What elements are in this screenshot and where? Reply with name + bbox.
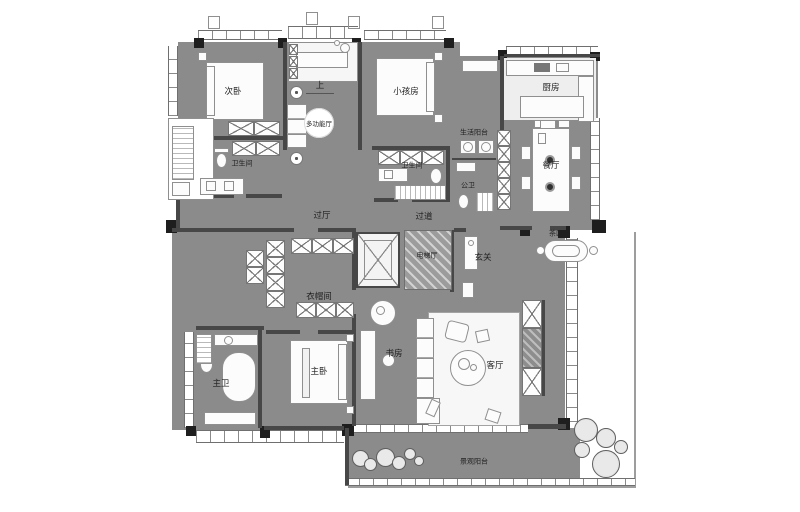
parapet-stub xyxy=(208,16,220,29)
plant xyxy=(592,450,620,478)
shower xyxy=(476,192,494,212)
wardrobe-box xyxy=(312,238,333,254)
window-seat xyxy=(204,412,256,425)
cabinet-decor xyxy=(468,240,474,246)
tv-wall-cabinet xyxy=(522,300,542,328)
wardrobe-box xyxy=(266,240,285,257)
radiator xyxy=(172,126,194,180)
toilet xyxy=(216,153,227,168)
wardrobe-box xyxy=(333,238,354,254)
parapet-stub xyxy=(432,16,444,29)
ceiling-fixture xyxy=(290,86,303,99)
ceiling-fixture xyxy=(290,152,303,165)
wall-segment xyxy=(452,158,496,160)
furniture-wardrobe xyxy=(228,121,254,136)
furniture-wardrobe xyxy=(254,121,280,136)
plant xyxy=(574,418,598,442)
column xyxy=(194,38,204,48)
sink xyxy=(224,336,233,345)
label-living-room: 客厅 xyxy=(486,362,503,371)
storage-box xyxy=(246,250,264,267)
kitchen-sink xyxy=(556,63,569,72)
wall-segment xyxy=(258,330,262,428)
wardrobe-box xyxy=(266,257,285,274)
wall-segment xyxy=(172,228,294,232)
laundry-cabinet xyxy=(462,60,498,72)
wall-segment xyxy=(318,228,356,232)
shelf-box xyxy=(289,68,298,79)
bath-cabinet xyxy=(378,150,400,165)
furniture-nightstand xyxy=(198,52,207,61)
vanity-counter xyxy=(378,168,408,182)
sofa-module xyxy=(416,358,434,378)
furniture-sofa-module xyxy=(287,134,307,148)
sink xyxy=(206,181,216,191)
furniture-long-table xyxy=(296,52,348,68)
furniture-nightstand xyxy=(434,114,443,123)
cooktop xyxy=(534,63,550,72)
window-top-bedroom2 xyxy=(198,30,282,40)
dining-chair xyxy=(521,146,531,160)
wardrobe-box xyxy=(266,291,285,308)
storage-box xyxy=(497,194,511,210)
balcony-railing xyxy=(345,478,635,486)
wall-segment xyxy=(264,426,344,430)
shoe-bench xyxy=(462,282,474,298)
kitchen-counter-top xyxy=(506,60,594,76)
label-view-balcony: 景观阳台 xyxy=(460,459,488,466)
study-desk xyxy=(360,330,376,400)
elevator-hall-hatch xyxy=(404,230,452,290)
decor-vase-small xyxy=(334,40,340,46)
washer-drum xyxy=(463,142,473,152)
dryer-drum xyxy=(481,142,491,152)
table-decor xyxy=(376,306,385,315)
storage-box xyxy=(246,267,264,284)
storage-box xyxy=(497,162,511,178)
label-master-bedroom: 主卧 xyxy=(310,368,327,377)
towel-rack xyxy=(196,334,212,364)
window-right-living xyxy=(566,238,578,422)
wardrobe-box xyxy=(266,274,285,291)
stair-line xyxy=(306,93,334,94)
label-elevator-hall: 电梯厅 xyxy=(417,253,438,260)
floor-plan-canvas: 次卧 小孩房 多功能厅 上 卫生间 卫生间 过厅 过道 生活阳台 厨房 公卫 餐… xyxy=(0,0,800,512)
sink xyxy=(384,170,393,179)
tea-stool xyxy=(536,246,545,255)
label-kids-room: 小孩房 xyxy=(393,88,419,97)
table-decor xyxy=(538,133,546,144)
wardrobe-box xyxy=(296,302,316,318)
window-top-kidsroom xyxy=(364,30,446,40)
wall-segment xyxy=(266,330,300,334)
label-bathroom-right: 卫生间 xyxy=(402,163,423,170)
toilet xyxy=(430,168,442,184)
column xyxy=(592,220,606,233)
storage-box xyxy=(497,130,511,146)
sofa-module xyxy=(416,318,434,338)
bath-cabinet xyxy=(422,150,444,165)
dining-chair xyxy=(540,120,556,129)
wall-segment xyxy=(246,194,282,198)
plant xyxy=(414,456,424,466)
wc-sink-counter xyxy=(456,162,476,172)
window-bottom-master xyxy=(196,430,344,443)
label-secondary-bedroom: 次卧 xyxy=(224,88,241,97)
wall-segment xyxy=(500,226,532,230)
dining-chair xyxy=(521,176,531,190)
label-foyer: 玄关 xyxy=(474,254,491,263)
place-setting xyxy=(545,182,555,192)
parapet-stub xyxy=(306,12,318,25)
plant xyxy=(596,428,616,448)
kitchen-island xyxy=(520,96,584,118)
label-multi-function-hall: 多功能厅 xyxy=(304,108,334,138)
furniture-bed-pillow xyxy=(426,62,435,112)
label-guest-wc: 公卫 xyxy=(461,183,475,190)
sofa-module xyxy=(416,338,434,358)
label-tea-area: 茶区 xyxy=(549,231,563,238)
label-dining-room: 餐厅 xyxy=(542,162,559,171)
wall-segment xyxy=(528,424,566,429)
decor-vase xyxy=(340,43,350,53)
plant xyxy=(614,440,628,454)
tea-stool xyxy=(589,246,598,255)
storage-box xyxy=(497,178,511,194)
column xyxy=(186,426,196,436)
wall-segment xyxy=(454,228,466,232)
label-stair-up: 上 xyxy=(316,82,325,91)
bath-cabinet xyxy=(232,141,256,156)
shelf-box xyxy=(289,44,298,55)
column xyxy=(444,38,454,48)
label-kitchen: 厨房 xyxy=(542,84,559,93)
window-left-master-bath xyxy=(184,332,194,428)
balcony-seat xyxy=(172,182,190,196)
bathtub xyxy=(394,185,446,200)
bath-cabinet xyxy=(256,141,280,156)
furniture-nightstand xyxy=(346,406,354,414)
sofa-module xyxy=(416,378,434,398)
wardrobe-box xyxy=(291,238,312,254)
bed-runner xyxy=(302,348,310,398)
window-right-dining xyxy=(590,118,600,220)
vanity-counter xyxy=(214,334,258,346)
terrace-outer-edge-right xyxy=(634,232,636,486)
wardrobe-box xyxy=(316,302,336,318)
stool xyxy=(558,120,570,128)
furniture-bed-pillow xyxy=(206,66,215,116)
window-left-bedroom2 xyxy=(168,46,178,116)
sink xyxy=(224,181,234,191)
tv-wall-edge xyxy=(542,300,545,396)
plant xyxy=(392,456,406,470)
label-bathroom-left: 卫生间 xyxy=(232,161,253,168)
label-pass-hall: 过厅 xyxy=(313,212,330,221)
wardrobe-box xyxy=(336,302,354,318)
shelf-box xyxy=(289,56,298,67)
parapet-stub xyxy=(348,16,360,29)
label-walk-in-closet: 衣帽间 xyxy=(306,293,332,302)
coffee-table-decor xyxy=(470,364,477,371)
wall-segment xyxy=(196,326,264,330)
tv-wall-panel xyxy=(522,328,542,368)
label-corridor: 过道 xyxy=(415,213,432,222)
tea-tray xyxy=(552,245,580,257)
furniture-bed-pillow xyxy=(338,344,347,400)
plant xyxy=(574,442,590,458)
wall-segment xyxy=(345,428,349,485)
toilet xyxy=(458,194,469,209)
elevator-car xyxy=(364,240,392,280)
wall-segment xyxy=(446,148,450,202)
bathtub-oval xyxy=(222,352,256,402)
label-service-balcony: 生活阳台 xyxy=(460,130,488,137)
dining-chair xyxy=(571,146,581,160)
dining-chair xyxy=(571,176,581,190)
storage-box xyxy=(497,146,511,162)
label-study: 书房 xyxy=(385,350,402,359)
terrace-outer-edge-bottom xyxy=(348,486,636,488)
label-master-bathroom: 主卫 xyxy=(212,380,229,389)
furniture-nightstand xyxy=(434,52,443,61)
coffee-table-decor xyxy=(458,358,470,370)
wall-segment xyxy=(504,54,600,57)
furniture-nightstand xyxy=(346,334,354,342)
tv-wall-cabinet xyxy=(522,368,542,396)
wall-segment xyxy=(358,42,362,150)
plant xyxy=(364,458,377,471)
